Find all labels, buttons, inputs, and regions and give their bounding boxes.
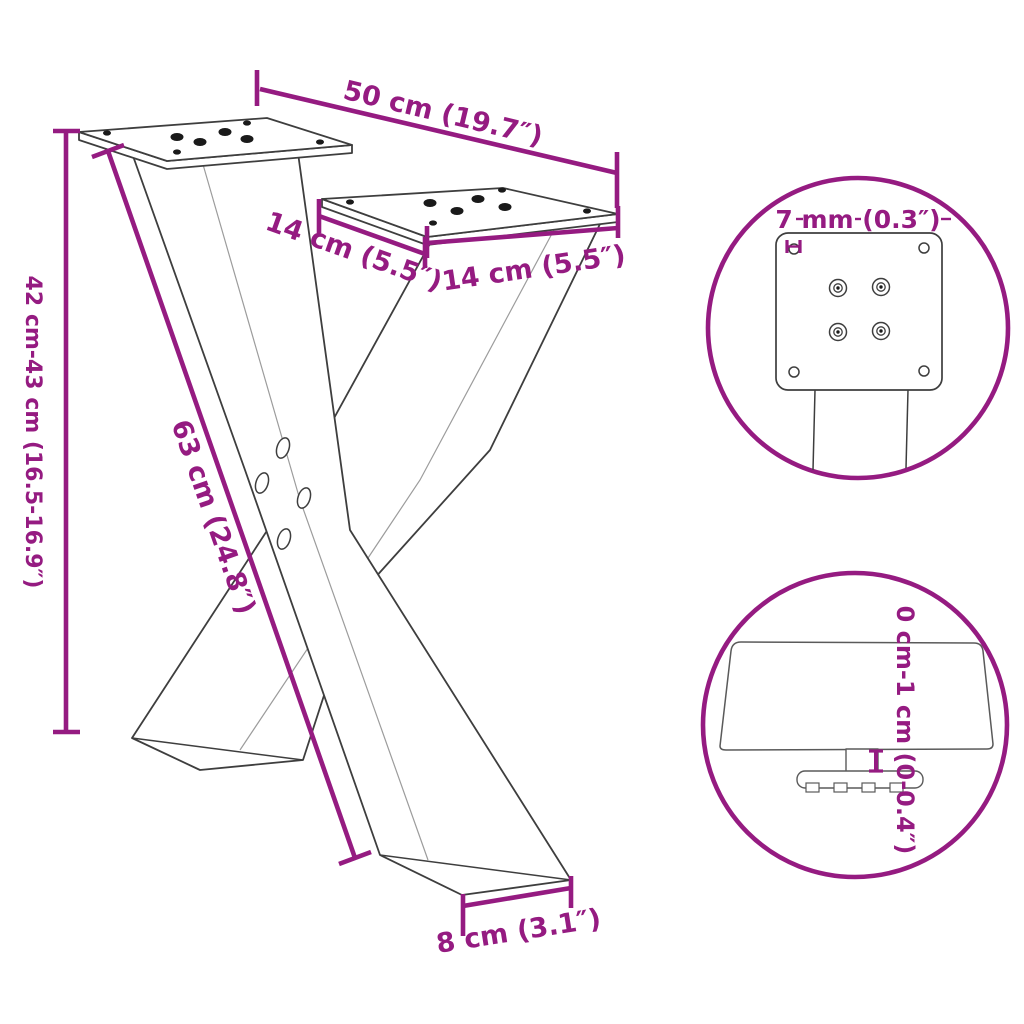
foot-adjustment-label: 0 cm-1 cm (0-0.4″)	[891, 606, 919, 855]
plate-thickness-label: 7 mm (0.3″)	[775, 205, 940, 234]
screw-hole	[429, 220, 437, 225]
screw-head	[194, 138, 207, 146]
detail-leg-below-plate	[813, 390, 908, 470]
screw-head	[499, 203, 512, 211]
screw-head	[219, 128, 232, 136]
screw-hole	[243, 120, 251, 125]
detail-plate-top-view	[776, 233, 942, 390]
screw-head	[241, 135, 254, 143]
screw-hole	[346, 199, 354, 204]
foot-ridge	[806, 783, 819, 792]
plate-detail-callout: 7 mm (0.3″)	[708, 178, 1008, 478]
dimension-height: 42 cm-43 cm (16.5-16.9″)	[20, 131, 80, 732]
product-dimension-diagram: 50 cm (19.7″) 14 cm (5.5″) 14 cm (5.5″) …	[0, 0, 1024, 1024]
foot-ridge	[862, 783, 875, 792]
diagram-canvas: 50 cm (19.7″) 14 cm (5.5″) 14 cm (5.5″) …	[0, 0, 1024, 1024]
screw-head	[424, 199, 437, 207]
screw-hole	[583, 208, 591, 213]
foot-width-label: 8 cm (3.1″)	[434, 903, 603, 960]
screw-hole	[173, 149, 181, 154]
left-mounting-plate	[79, 118, 352, 169]
screw-hole	[103, 130, 111, 135]
detail-leg-bottom	[720, 642, 993, 750]
screw-head	[472, 195, 485, 203]
screw-head	[451, 207, 464, 215]
height-label: 42 cm-43 cm (16.5-16.9″)	[20, 276, 45, 589]
foot-detail-callout: 0 cm-1 cm (0-0.4″)	[703, 573, 1007, 877]
screw-hole	[498, 187, 506, 192]
screw-head	[171, 133, 184, 141]
screw-hole	[316, 139, 324, 144]
foot-ridge	[834, 783, 847, 792]
